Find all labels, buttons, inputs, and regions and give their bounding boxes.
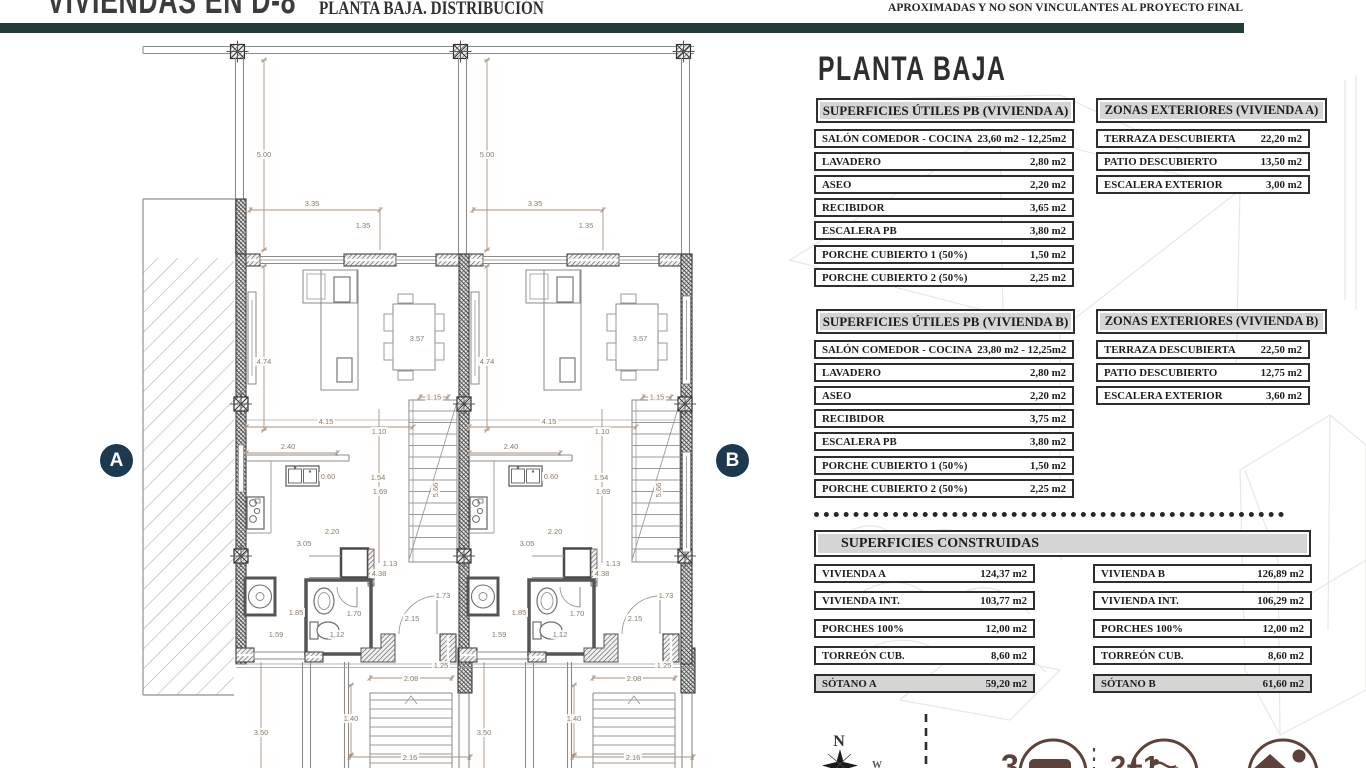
svg-text:1.59: 1.59	[492, 630, 507, 639]
svg-text:W: W	[872, 760, 882, 768]
svg-text:2.08: 2.08	[404, 674, 419, 683]
svg-text:4.74: 4.74	[480, 357, 495, 366]
svg-text:1.25: 1.25	[657, 661, 672, 670]
svg-text:3.35: 3.35	[528, 199, 543, 208]
svg-text:0.60: 0.60	[544, 472, 559, 481]
svg-text:2.16: 2.16	[626, 753, 641, 762]
svg-text:1.69: 1.69	[373, 487, 388, 496]
svg-text:4.74: 4.74	[257, 357, 272, 366]
svg-text:1.35: 1.35	[356, 221, 371, 230]
svg-text:4.38: 4.38	[595, 569, 610, 578]
svg-text:1.85: 1.85	[512, 608, 527, 617]
svg-text:3.57: 3.57	[410, 334, 425, 343]
svg-text:1.12: 1.12	[330, 630, 345, 639]
svg-text:5.00: 5.00	[480, 150, 495, 159]
svg-text:1.73: 1.73	[436, 591, 451, 600]
svg-text:3.50: 3.50	[477, 728, 492, 737]
svg-text:2.15: 2.15	[405, 614, 420, 623]
svg-text:1.12: 1.12	[553, 630, 568, 639]
svg-text:1.15: 1.15	[427, 393, 442, 402]
svg-text:1.40: 1.40	[567, 714, 582, 723]
svg-text:2.08: 2.08	[627, 674, 642, 683]
svg-text:N: N	[833, 733, 845, 750]
svg-text:2.40: 2.40	[504, 442, 519, 451]
svg-text:1.59: 1.59	[269, 630, 284, 639]
svg-text:1.54: 1.54	[371, 473, 386, 482]
svg-text:1.15: 1.15	[650, 393, 665, 402]
svg-text:5.00: 5.00	[257, 150, 272, 159]
svg-text:1.13: 1.13	[606, 559, 621, 568]
svg-text:2.20: 2.20	[325, 527, 340, 536]
svg-text:4.38: 4.38	[372, 569, 387, 578]
svg-text:1.73: 1.73	[659, 591, 674, 600]
svg-text:1.70: 1.70	[347, 609, 362, 618]
svg-text:4.15: 4.15	[542, 417, 557, 426]
svg-text:5.66: 5.66	[431, 483, 440, 498]
svg-text:2.20: 2.20	[548, 527, 563, 536]
svg-text:1.54: 1.54	[594, 473, 609, 482]
svg-text:3.50: 3.50	[254, 728, 269, 737]
svg-text:3.35: 3.35	[305, 199, 320, 208]
svg-text:1.40: 1.40	[344, 714, 359, 723]
svg-text:1.25: 1.25	[434, 661, 449, 670]
svg-text:3.05: 3.05	[297, 539, 312, 548]
svg-text:3.05: 3.05	[520, 539, 535, 548]
svg-text:0.60: 0.60	[321, 472, 336, 481]
svg-text:1.13: 1.13	[383, 559, 398, 568]
svg-text:1.10: 1.10	[372, 427, 387, 436]
svg-text:1.85: 1.85	[289, 608, 304, 617]
svg-text:5.66: 5.66	[654, 483, 663, 498]
svg-text:4.15: 4.15	[319, 417, 334, 426]
svg-text:1.70: 1.70	[570, 609, 585, 618]
svg-text:1.35: 1.35	[579, 221, 594, 230]
svg-text:1.10: 1.10	[595, 427, 610, 436]
svg-text:3.57: 3.57	[633, 334, 648, 343]
svg-text:2.40: 2.40	[281, 442, 296, 451]
svg-text:3: 3	[1001, 748, 1019, 768]
svg-text:1.69: 1.69	[596, 487, 611, 496]
svg-text:2.15: 2.15	[628, 614, 643, 623]
svg-text:2.16: 2.16	[403, 753, 418, 762]
